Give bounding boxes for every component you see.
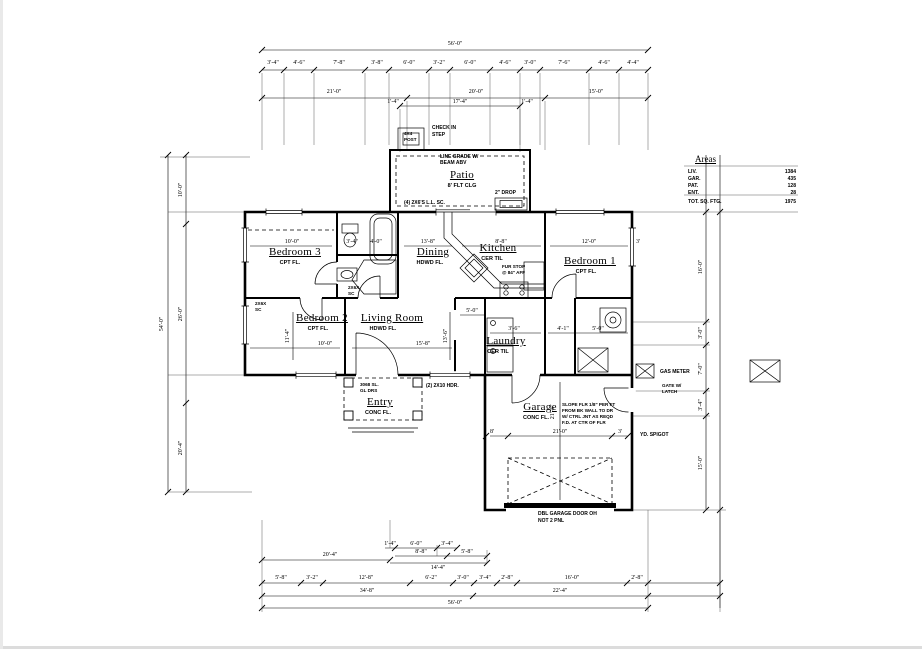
- note-patio-drop: 2" DROP: [495, 191, 516, 196]
- dim-cluster-c: 6'-0": [410, 541, 422, 547]
- areas-row-value: 1384: [785, 170, 796, 175]
- dim-garage-h: 21'-4": [550, 405, 556, 420]
- areas-row-value: 435: [788, 177, 796, 182]
- dim-cluster-g: 5'-8": [461, 549, 473, 555]
- dim-garage-r: 3': [618, 429, 622, 435]
- room-label-living: Living Room: [361, 313, 423, 324]
- room-sub-bedroom2: CPT FL.: [308, 327, 329, 333]
- dim-b1: 2'-8": [501, 575, 513, 581]
- areas-total-label: TOT. SQ. FTG.: [688, 200, 722, 205]
- dim-top-seg: 3'-8": [371, 60, 383, 66]
- dim-cluster-e: 8'-8": [415, 549, 427, 555]
- dim-bed2-h: 11'-4": [285, 329, 291, 343]
- note-garage-door-1: DBL GARAGE DOOR OH: [538, 512, 597, 517]
- fixtures: [337, 128, 780, 432]
- room-label-bedroom3: Bedroom 3: [269, 247, 321, 258]
- room-sub-garage: CONC FL.: [523, 416, 549, 422]
- room-sub-laundry: CER TIL: [487, 350, 508, 356]
- note-patio-beam-2: BEAM ABV: [440, 161, 466, 166]
- note-garage-door-2: NOT 2 PNL: [538, 519, 564, 524]
- dim-patio-row: 1'-4": [387, 99, 399, 105]
- dim-top-seg: 6'-0": [464, 60, 476, 66]
- dim-bed2-w: 10'-0": [318, 341, 333, 347]
- note-patio-post: (4) 2X6'S L.L. SC.: [404, 201, 445, 206]
- note-gas-meter: GAS METER: [660, 370, 690, 375]
- dim-laundry-c: 5'-0": [592, 326, 604, 332]
- areas-title: Areas: [695, 155, 716, 164]
- note-kitchen-fur-1: FUR STOP: [502, 265, 525, 270]
- dim-top-row2: 15'-0": [589, 89, 604, 95]
- note-tag2-1: 2X6X: [255, 302, 266, 307]
- dim-garage-w: 21'-0": [553, 429, 568, 435]
- areas-row-label: LIV.: [688, 170, 697, 175]
- note-post-2: POST: [404, 138, 417, 143]
- dim-top-overall: 56'-0": [448, 41, 463, 47]
- dim-top-seg: 4'-6": [598, 60, 610, 66]
- note-garage-slope-4: F.D. AT CTR OF FLR: [562, 421, 606, 426]
- dim-top-seg: 4'-6": [293, 60, 305, 66]
- dim-bed1-w: 12'-0": [582, 239, 597, 245]
- room-label-bedroom1: Bedroom 1: [564, 256, 616, 267]
- note-gate-1: GATE W/: [662, 384, 681, 389]
- room-sub-bedroom3: CPT FL.: [280, 261, 301, 267]
- note-entry-door-2: GL DRS: [360, 389, 377, 394]
- dim-top-seg: 3'-0": [524, 60, 536, 66]
- interior-walls: [245, 212, 632, 375]
- note-check-step-1: CHECK IN: [432, 126, 456, 131]
- garage-door-slab: [504, 503, 616, 508]
- dim-bed3-b: 4'-0": [370, 239, 382, 245]
- dim-left: 10'-0": [178, 183, 184, 198]
- room-sub-patio: 8' FLT CLG: [448, 184, 477, 190]
- dim-top-seg: 3'-4": [267, 60, 279, 66]
- note-check-step-2: STEP: [432, 133, 445, 138]
- room-label-patio: Patio: [450, 170, 474, 181]
- room-label-dining: Dining: [417, 247, 449, 258]
- dim-top-row2: 20'-0": [469, 89, 484, 95]
- dim-top-seg: 7'-6": [558, 60, 570, 66]
- dim-right: 3'-4": [698, 399, 704, 411]
- note-gate-2: LATCH: [662, 390, 677, 395]
- dim-top-seg: 3'-2": [433, 60, 445, 66]
- note-entry-door-1: 3068 SL.: [360, 383, 379, 388]
- dim-cluster-f: 14'-4": [431, 565, 446, 571]
- dim-b1: 2'-8": [631, 575, 643, 581]
- dim-right: 3'-0": [698, 327, 704, 339]
- note-tag1-1: 2X6X: [348, 286, 359, 291]
- room-sub-kitchen: CER TIL: [481, 257, 502, 263]
- dim-living-h: 13'-6": [443, 329, 449, 344]
- note-tag1-2: SC: [348, 292, 354, 297]
- dim-dining-w: 13'-8": [421, 239, 436, 245]
- areas-row-value: 28: [790, 191, 796, 196]
- areas-total-value: 1975: [785, 200, 796, 205]
- room-label-laundry: Laundry: [486, 336, 525, 347]
- dim-top-seg: 7'-8": [333, 60, 345, 66]
- dim-bed3-a: 3'-4": [346, 239, 358, 245]
- floor-plan-sheet: 56'-0" 3'-4" 4'-6" 7'-8" 3'-8" 6'-0" 3'-…: [0, 0, 922, 649]
- dim-b1: 3'-4": [479, 575, 491, 581]
- note-tag2-2: SC: [255, 308, 261, 313]
- areas-row-label: PAT.: [688, 184, 698, 189]
- dim-patio-row: 17'-4": [453, 99, 468, 105]
- dim-cluster-d: 3'-4": [441, 541, 453, 547]
- dim-right: 7'-0": [698, 363, 704, 375]
- note-entry-hdr: (2) 2X10 HDR.: [426, 384, 459, 389]
- note-garage-slope-3: W/ CTRL JNT AS REQD: [562, 415, 613, 420]
- dim-living-w: 15'-8": [416, 341, 431, 347]
- window-glyphs: [242, 209, 637, 379]
- note-kitchen-fur-2: @ 84" AFF: [502, 271, 525, 276]
- dim-left: 26'-0": [178, 307, 184, 322]
- room-label-entry: Entry: [367, 397, 393, 408]
- note-garage-slope-1: SLOPE FLR 1/8" PER FT: [562, 403, 615, 408]
- dim-top-seg: 4'-6": [499, 60, 511, 66]
- areas-row-label: ENT.: [688, 191, 699, 196]
- dim-b1: 16'-0": [565, 575, 580, 581]
- room-sub-entry: CONC FL.: [365, 411, 391, 417]
- dim-hall: 5'-0": [466, 308, 478, 314]
- dim-garage-l: 8': [490, 429, 494, 435]
- areas-row-value: 128: [788, 184, 796, 189]
- dim-laundry-a: 3'-6": [508, 326, 520, 332]
- dim-bottom-total: 56'-0": [448, 600, 463, 606]
- note-post-1: 4X4: [404, 132, 412, 137]
- dim-top-seg: 4'-4": [627, 60, 639, 66]
- dim-left: 20'-4": [178, 441, 184, 456]
- dim-b1: 5'-8": [275, 575, 287, 581]
- dim-b2: 34'-8": [360, 588, 375, 594]
- dim-cluster-a: 20'-4": [323, 552, 338, 558]
- dim-top-row2: 21'-0": [327, 89, 342, 95]
- dim-patio-row: 1'-4": [521, 99, 533, 105]
- room-sub-bedroom1: CPT FL.: [576, 270, 597, 276]
- dim-right: 15'-0": [698, 456, 704, 471]
- room-sub-dining: HDWD FL.: [417, 261, 444, 267]
- dim-laundry-b: 4'-1": [557, 326, 569, 332]
- areas-row-label: GAR.: [688, 177, 701, 182]
- room-sub-living: HDWD FL.: [370, 327, 397, 333]
- dim-kitchen-w: 8'-8": [495, 239, 507, 245]
- dim-bed1-side: 3': [636, 239, 640, 245]
- dim-right: 16'-0": [698, 260, 704, 275]
- room-label-bedroom2: Bedroom 2: [296, 313, 348, 324]
- dim-b1: 3'-0": [457, 575, 469, 581]
- dim-bed3-w: 10'-0": [285, 239, 300, 245]
- dim-b2: 22'-4": [553, 588, 568, 594]
- dim-top-seg: 6'-0": [403, 60, 415, 66]
- dim-b1: 6'-2": [425, 575, 437, 581]
- dim-cluster-b: 1'-4": [384, 541, 396, 547]
- note-garage-slope-2: FROM BK WALL TO DR: [562, 409, 613, 414]
- dim-b1: 12'-8": [359, 575, 374, 581]
- dim-left-overall: 54'-0": [159, 317, 165, 332]
- dim-b1: 3'-2": [306, 575, 318, 581]
- note-spigot: YD. SPIGOT: [640, 433, 669, 438]
